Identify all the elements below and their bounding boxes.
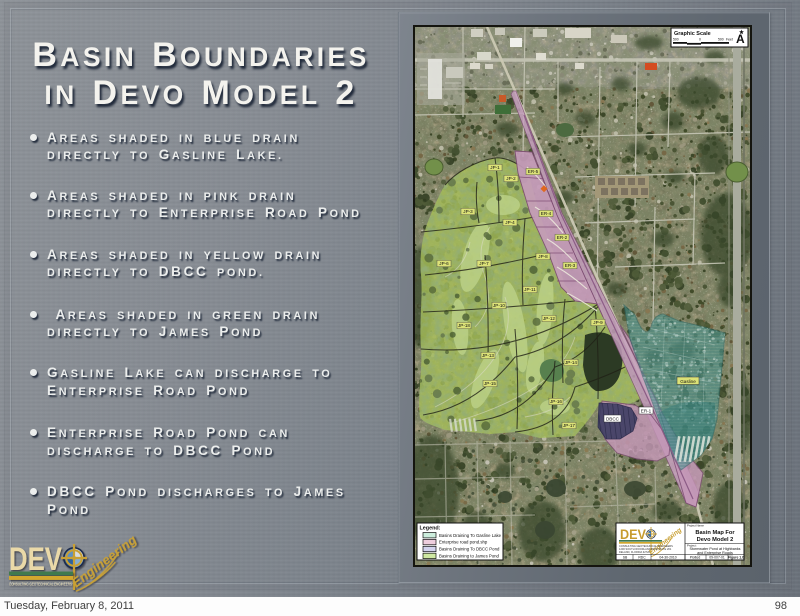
svg-text:JP-10: JP-10: [493, 303, 505, 308]
svg-text:CONSULTING GEOTECHNICAL ENGINE: CONSULTING GEOTECHNICAL ENGINEERS: [9, 582, 72, 587]
svg-text:JP-18: JP-18: [458, 323, 470, 328]
svg-text:JP-7: JP-7: [479, 261, 489, 266]
svg-text:Basins Draining To Gasline Lak: Basins Draining To Gasline Lake: [439, 533, 502, 538]
svg-text:RDC: RDC: [638, 556, 646, 560]
svg-text:JP-14: JP-14: [565, 360, 577, 365]
svg-text:JP-2: JP-2: [506, 176, 516, 181]
svg-text:JP-1: JP-1: [490, 165, 500, 170]
svg-text:JP-17: JP-17: [563, 423, 575, 428]
svg-text:ER-1: ER-1: [641, 409, 652, 414]
svg-text:JP-4: JP-4: [505, 220, 515, 225]
svg-text:and Enterprise Roads: and Enterprise Roads: [697, 551, 733, 555]
svg-text:Project Name: Project Name: [687, 524, 704, 528]
svg-text:ER-5: ER-5: [528, 169, 539, 174]
svg-text:SB: SB: [623, 556, 628, 560]
svg-text:500: 500: [673, 38, 679, 42]
svg-text:Plotted: Plotted: [690, 556, 701, 560]
svg-text:Enterprise road pond.shp: Enterprise road pond.shp: [439, 540, 488, 545]
svg-text:Basin Map For: Basin Map For: [695, 530, 735, 536]
svg-text:Figure 1.0: Figure 1.0: [728, 556, 744, 560]
svg-text:ER-4: ER-4: [541, 211, 552, 216]
svg-text:JP-9: JP-9: [593, 320, 603, 325]
svg-text:JP-13: JP-13: [482, 353, 494, 358]
svg-text:500: 500: [718, 38, 724, 42]
svg-text:Gasline: Gasline: [680, 379, 696, 384]
svg-text:0: 0: [699, 38, 701, 42]
svg-text:JP-16: JP-16: [550, 399, 562, 404]
svg-text:04-30-2010: 04-30-2010: [659, 556, 676, 560]
svg-text:Basins Draining To DBCC Pond: Basins Draining To DBCC Pond: [439, 547, 500, 552]
svg-text:Graphic Scale: Graphic Scale: [674, 31, 711, 37]
svg-text:JP-15: JP-15: [484, 381, 496, 386]
svg-text:DBCC: DBCC: [606, 417, 620, 422]
svg-text:09-007-01: 09-007-01: [709, 556, 725, 560]
svg-text:JP-12: JP-12: [543, 316, 555, 321]
svg-text:JP-3: JP-3: [463, 209, 473, 214]
svg-text:Devo Model 2: Devo Model 2: [697, 537, 734, 543]
svg-text:JP-8: JP-8: [538, 254, 548, 259]
svg-text:Legend:: Legend:: [420, 526, 441, 532]
svg-text:DEV: DEV: [620, 526, 647, 542]
svg-text:A: A: [736, 32, 745, 46]
svg-text:Basins Draining to James Pond: Basins Draining to James Pond: [439, 554, 500, 559]
svg-text:Feet: Feet: [726, 38, 733, 42]
svg-text:JP-6: JP-6: [439, 261, 449, 266]
svg-text:ER-3: ER-3: [565, 263, 576, 268]
svg-text:ER-2: ER-2: [557, 235, 568, 240]
svg-text:DELAND, FLORIDA 32720: DELAND, FLORIDA 32720: [619, 550, 651, 554]
svg-text:JP-11: JP-11: [524, 287, 536, 292]
